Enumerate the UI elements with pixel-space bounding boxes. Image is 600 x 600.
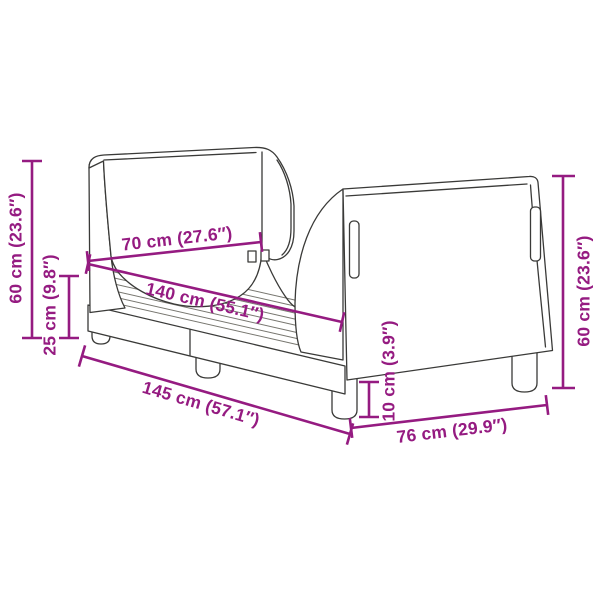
footboard-far-leg [512, 352, 537, 392]
slat-bracket [248, 251, 256, 262]
dimension-label-left-height: 60 cm (23.6″) [6, 192, 27, 303]
footboard-strap-near [350, 221, 360, 278]
dimension-label-leg-height: 10 cm (3.9″) [379, 320, 400, 421]
dimension-line-leg-height [359, 382, 379, 417]
dimension-line-base-height [59, 276, 79, 338]
footboard-wing [295, 189, 343, 360]
footboard-strap-far [531, 207, 541, 261]
dimension-line-right-height [552, 176, 575, 388]
dimension-label-base-height: 25 cm (9.8″) [40, 254, 61, 355]
dimension-diagram: 60 cm (23.6″) 25 cm (9.8″) 70 cm (27.6″)… [0, 0, 600, 600]
bed-frame-line-art [0, 0, 600, 600]
footboard [343, 176, 553, 380]
dimension-label-right-height: 60 cm (23.6″) [574, 235, 595, 346]
